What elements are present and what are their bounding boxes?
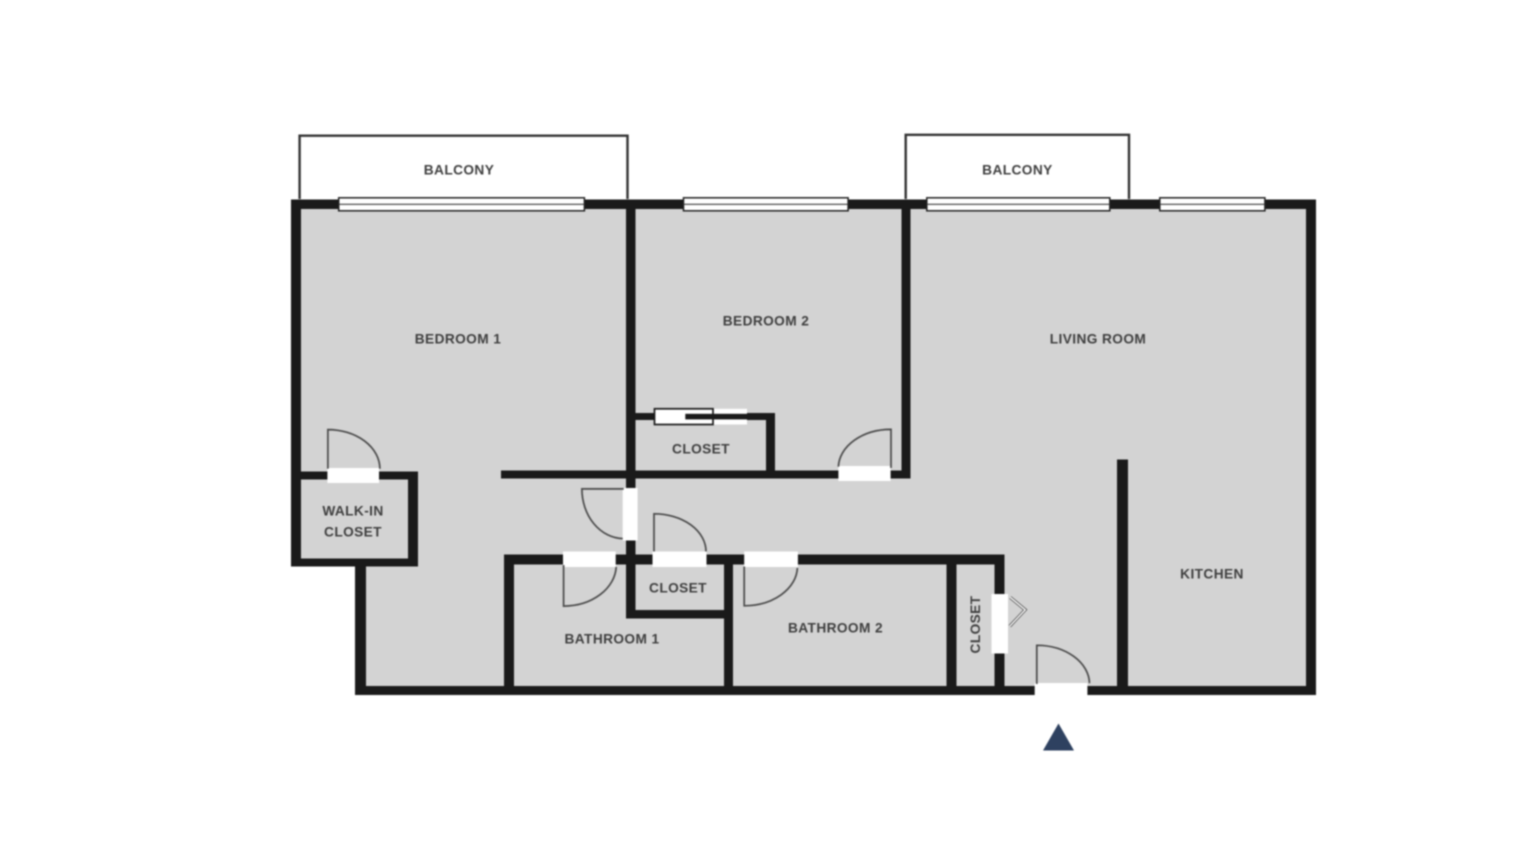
svg-text:BATHROOM 1: BATHROOM 1: [565, 632, 660, 647]
svg-text:BALCONY: BALCONY: [424, 163, 494, 178]
svg-text:BATHROOM 2: BATHROOM 2: [788, 620, 883, 635]
svg-text:BALCONY: BALCONY: [982, 163, 1052, 178]
svg-text:LIVING ROOM: LIVING ROOM: [1050, 332, 1146, 347]
svg-text:CLOSET: CLOSET: [324, 525, 382, 540]
svg-text:CLOSET: CLOSET: [649, 581, 707, 596]
svg-text:BEDROOM 2: BEDROOM 2: [723, 314, 810, 329]
svg-text:CLOSET: CLOSET: [672, 442, 730, 457]
svg-text:BEDROOM 1: BEDROOM 1: [415, 332, 502, 347]
svg-text:KITCHEN: KITCHEN: [1180, 567, 1244, 582]
svg-text:CLOSET: CLOSET: [968, 595, 983, 653]
svg-text:WALK-IN: WALK-IN: [322, 504, 383, 519]
